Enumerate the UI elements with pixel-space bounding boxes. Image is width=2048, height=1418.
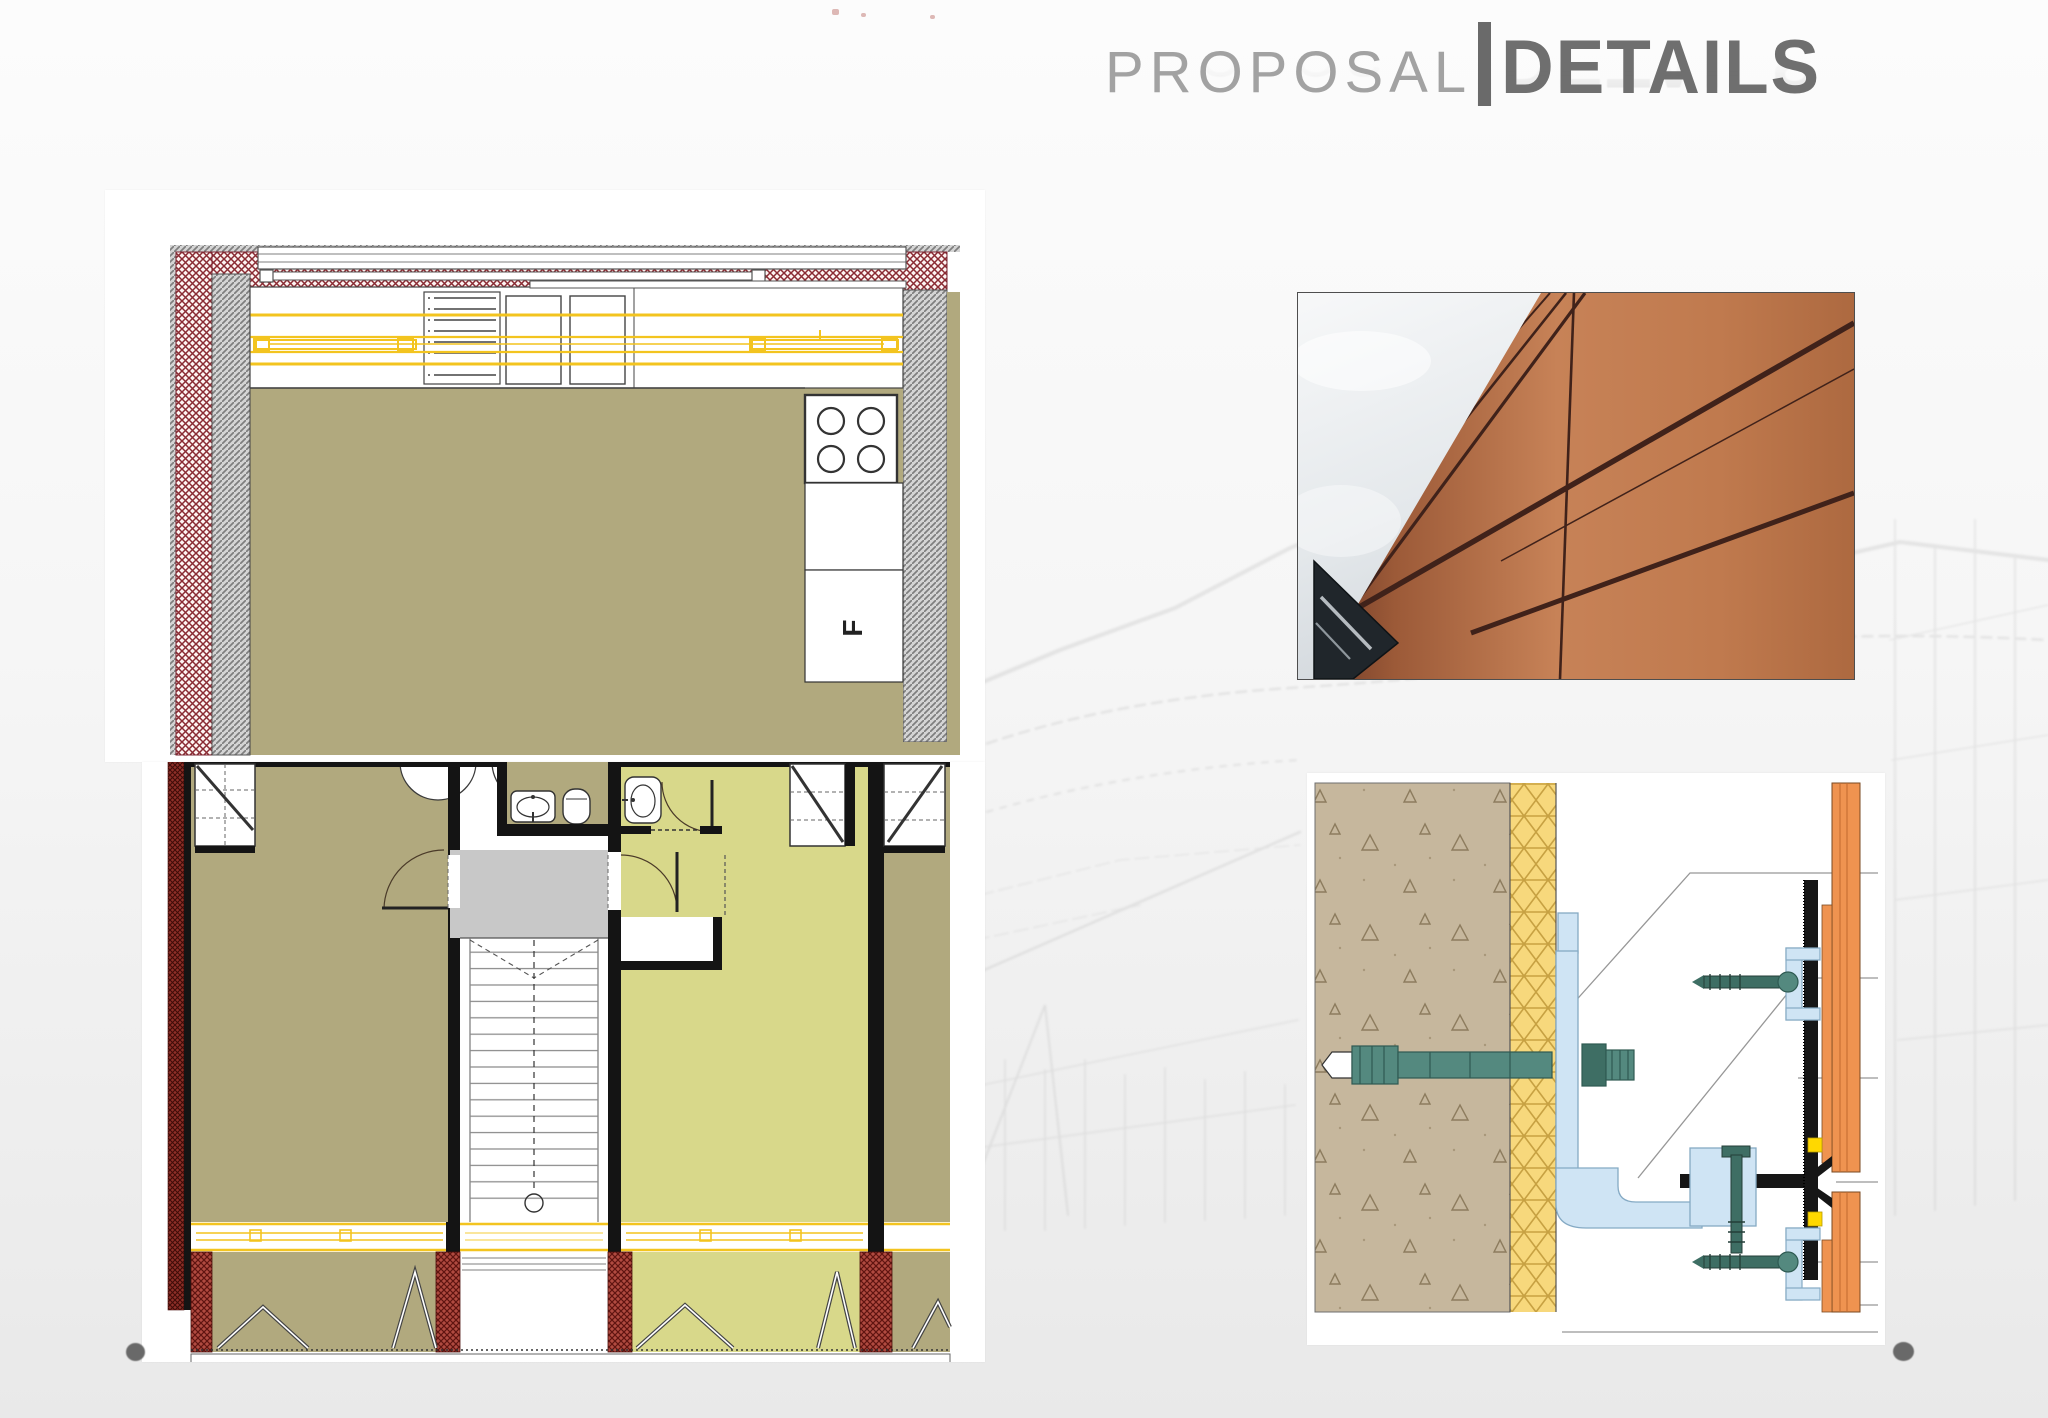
- window-box-symbol: [884, 764, 945, 853]
- landing-area: [450, 850, 608, 938]
- gasket: [1808, 1138, 1822, 1152]
- slide-corner-dot-right: [1893, 1342, 1914, 1361]
- screen-artifact-speck: [832, 9, 839, 15]
- clip-screw: [1692, 1252, 1798, 1272]
- kitchen-floor-plan: F: [105, 190, 985, 762]
- stove-symbol: [805, 395, 897, 483]
- toilet-symbol: [563, 789, 590, 824]
- fridge-label: F: [837, 619, 868, 636]
- sink-symbol: [511, 791, 555, 822]
- screen-artifact-speck: [861, 13, 866, 17]
- title-reflection: PROPOSAL DETAILS: [1105, 22, 1835, 106]
- facade-photo-frame: [1297, 292, 1855, 680]
- clip-screw: [1692, 972, 1798, 992]
- presentation-slide: PROPOSAL DETAILS PROPOSAL DETAILS: [0, 0, 2048, 1418]
- slide-title: PROPOSAL DETAILS PROPOSAL DETAILS: [1105, 22, 1835, 190]
- insulation-layer: [1510, 783, 1556, 1312]
- facade-anchor-detail-drawing: [1307, 773, 1885, 1345]
- anchor-detail-card: [1307, 773, 1885, 1345]
- concrete-wall-layer: [1315, 783, 1510, 1312]
- window-box-symbol: [195, 764, 255, 853]
- kitchen-plan-card: F: [105, 190, 985, 762]
- window-band: [191, 1222, 950, 1255]
- apartment-floor-plan: [142, 762, 985, 1362]
- sink-symbol: [622, 777, 661, 823]
- slide-corner-dot-left: [126, 1343, 145, 1361]
- window-box-symbol: [790, 764, 855, 846]
- cladding-panel: [1822, 783, 1860, 1312]
- screen-artifact-speck: [930, 15, 935, 19]
- stair-symbol: [460, 938, 608, 1222]
- gasket: [1808, 1212, 1822, 1226]
- apartment-plan-card: [142, 762, 985, 1362]
- copper-facade-photo: [1298, 293, 1854, 679]
